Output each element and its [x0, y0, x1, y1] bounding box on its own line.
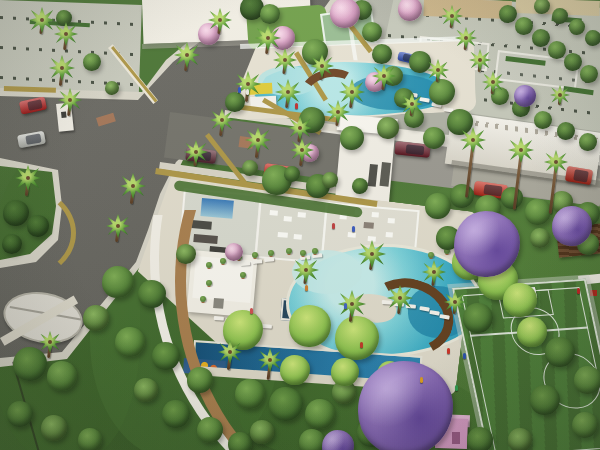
palm-fronds [54, 22, 78, 46]
palm-tree [49, 55, 75, 81]
green-tree [450, 184, 474, 208]
potted-plant [268, 250, 274, 256]
palm-fronds [293, 257, 319, 283]
palm-tree [326, 100, 350, 124]
green-tree [429, 79, 455, 105]
palm-fronds [290, 138, 314, 162]
green-tree [41, 415, 67, 441]
green-tree [260, 4, 280, 24]
palm-fronds [326, 100, 350, 124]
green-tree [105, 81, 119, 95]
miniature-person [238, 87, 241, 93]
green-tree [515, 17, 533, 35]
potted-plant [220, 258, 226, 264]
green-tree [3, 200, 29, 226]
green-tree [269, 387, 303, 421]
palm-fronds [372, 64, 396, 88]
green-tree [176, 244, 196, 264]
green-tree [534, 111, 552, 129]
green-tree [530, 228, 550, 248]
palm-fronds [310, 54, 334, 78]
palm-fronds [258, 348, 282, 372]
potted-plant [286, 248, 292, 254]
palm-fronds [469, 49, 491, 71]
palm-fronds [422, 260, 446, 284]
green-tree [564, 53, 582, 71]
green-tree [362, 22, 382, 42]
green-tree [580, 65, 598, 83]
palm-tree [184, 140, 208, 164]
palm-fronds [218, 340, 242, 364]
palm-tree [508, 137, 534, 163]
lounge-chair [264, 257, 274, 262]
green-tree [545, 337, 575, 367]
palm-tree [444, 291, 466, 313]
palm-fronds [550, 85, 570, 105]
lounge-chair [252, 259, 262, 264]
palm-tree [218, 340, 242, 364]
green-tree [503, 283, 537, 317]
palm-tree [15, 165, 41, 191]
palm-tree [482, 71, 504, 93]
miniature-person [344, 303, 347, 309]
miniature-person [250, 308, 253, 314]
potted-plant [206, 280, 212, 286]
palm-fronds [338, 290, 366, 318]
miniature-person [360, 342, 363, 348]
palm-fronds [273, 48, 297, 72]
palm-fronds [460, 127, 486, 153]
green-tree [134, 378, 158, 402]
palm-fronds [427, 59, 449, 81]
miniature-person [246, 89, 249, 95]
palm-fronds [208, 8, 232, 32]
palm-tree [441, 5, 463, 27]
green-tree [187, 367, 213, 393]
green-tree [197, 417, 223, 443]
palm-fronds [508, 137, 534, 163]
green-tree [78, 428, 102, 450]
miniature-person [447, 348, 450, 354]
green-tree [572, 412, 598, 438]
palm-tree [469, 49, 491, 71]
green-tree [162, 400, 190, 428]
palm-fronds [401, 93, 423, 115]
potted-plant [312, 248, 318, 254]
palm-fronds [441, 5, 463, 27]
palm-tree [208, 8, 232, 32]
palm-tree [54, 22, 78, 46]
green-tree [548, 41, 566, 59]
palm-fronds [39, 331, 61, 353]
green-tree [7, 401, 33, 427]
palm-tree [39, 331, 61, 353]
palm-tree [210, 108, 234, 132]
jacaranda-tree [454, 211, 520, 277]
green-tree [152, 342, 180, 370]
green-tree [569, 19, 585, 35]
palm-fronds [482, 71, 504, 93]
palm-fronds [106, 214, 130, 238]
palm-fronds [288, 116, 312, 140]
palm-fronds [245, 127, 271, 153]
green-tree [335, 316, 379, 360]
green-tree [228, 432, 252, 450]
palm-tree [422, 260, 446, 284]
lounge-chair [214, 316, 224, 321]
jacaranda-tree [358, 361, 453, 450]
scene [0, 0, 600, 450]
miniature-person [420, 377, 423, 383]
green-tree [2, 234, 22, 254]
green-tree [508, 428, 532, 450]
palm-tree [290, 138, 314, 162]
green-tree [242, 160, 258, 176]
palm-tree [106, 214, 130, 238]
palm-tree [427, 59, 449, 81]
green-tree [331, 358, 359, 386]
green-tree [289, 305, 331, 347]
green-tree [574, 366, 600, 394]
palm-tree [550, 85, 570, 105]
palm-fronds [49, 55, 75, 81]
potted-plant [240, 272, 246, 278]
gate-pillar-plaque [61, 111, 67, 117]
palm-fronds [15, 165, 41, 191]
palm-tree [372, 64, 396, 88]
potted-plant [300, 250, 306, 256]
palm-fronds [544, 150, 568, 174]
green-tree [235, 379, 265, 409]
green-tree [377, 117, 399, 139]
green-tree [352, 178, 368, 194]
green-tree [467, 427, 493, 450]
palm-fronds [184, 140, 208, 164]
palm-fronds [358, 240, 386, 268]
green-tree [423, 127, 445, 149]
palm-fronds [174, 42, 200, 68]
palm-tree [174, 42, 200, 68]
palm-tree [387, 285, 413, 311]
green-tree [83, 53, 101, 71]
green-tree [83, 305, 109, 331]
pink-flowering-tree [225, 243, 243, 261]
green-tree [250, 420, 274, 444]
miniature-person [332, 223, 335, 229]
palm-tree [293, 257, 319, 283]
palm-tree [273, 48, 297, 72]
palm-tree [358, 240, 386, 268]
palm-tree [275, 79, 301, 105]
green-tree [557, 122, 575, 140]
palm-tree [338, 290, 366, 318]
green-tree [280, 355, 310, 385]
green-tree [102, 266, 134, 298]
palm-tree [29, 7, 55, 33]
palm-tree [455, 27, 477, 49]
green-tree [501, 187, 523, 209]
green-tree [530, 385, 560, 415]
lounge-chair [262, 324, 272, 329]
green-tree [340, 126, 364, 150]
miniature-person [295, 103, 298, 109]
lounge-chair [240, 261, 250, 266]
green-tree [27, 215, 49, 237]
palm-fronds [387, 285, 413, 311]
green-tree [585, 30, 600, 46]
green-tree [552, 8, 568, 24]
green-tree [517, 317, 547, 347]
palm-tree [245, 127, 271, 153]
potted-plant [252, 252, 258, 258]
palm-tree [120, 173, 146, 199]
jacaranda-tree [552, 206, 592, 246]
green-tree [463, 303, 493, 333]
green-tree [138, 280, 166, 308]
green-tree [284, 166, 300, 182]
palm-fronds [455, 27, 477, 49]
miniature-person [577, 288, 580, 294]
palm-fronds [210, 108, 234, 132]
palm-tree [258, 348, 282, 372]
palm-fronds [444, 291, 466, 313]
green-tree [372, 44, 392, 64]
green-tree [305, 399, 335, 429]
green-tree [322, 172, 338, 188]
green-tree [499, 5, 517, 23]
miniature-person [463, 353, 466, 359]
miniature-person [455, 385, 458, 391]
palm-fronds [58, 88, 82, 112]
green-tree [115, 327, 145, 357]
miniature-person [305, 285, 308, 291]
palm-tree [58, 88, 82, 112]
jacaranda-tree [514, 85, 536, 107]
green-tree [525, 199, 551, 225]
palm-tree [310, 54, 334, 78]
palm-tree [544, 150, 568, 174]
palm-tree [460, 127, 486, 153]
potted-plant [428, 252, 434, 258]
green-tree [425, 193, 451, 219]
palm-fronds [275, 79, 301, 105]
potted-plant [200, 296, 206, 302]
miniature-person [352, 226, 355, 232]
green-tree [532, 29, 550, 47]
palm-fronds [120, 173, 146, 199]
palm-tree [401, 93, 423, 115]
palm-fronds [29, 7, 55, 33]
palm-tree [288, 116, 312, 140]
green-tree [579, 133, 597, 151]
green-tree [47, 361, 77, 391]
potted-plant [206, 262, 212, 268]
